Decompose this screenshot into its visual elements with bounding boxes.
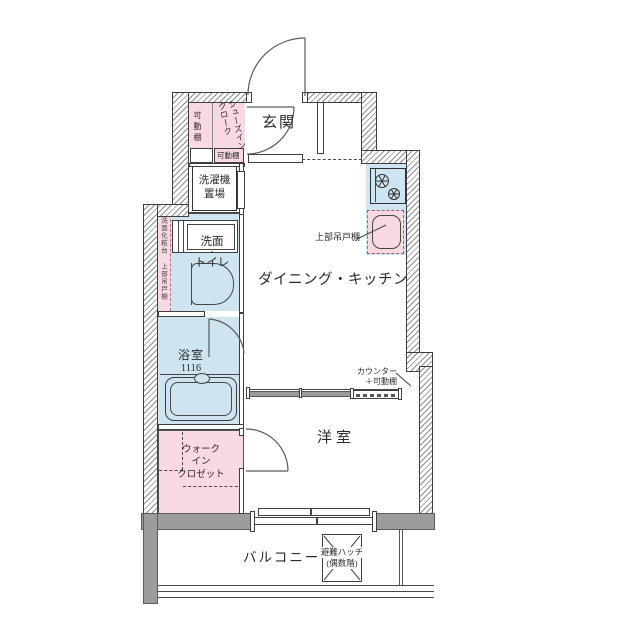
stove-burners	[376, 175, 400, 200]
vanity-strip-label: 洗面化粧台	[159, 217, 166, 255]
dining-kitchen-label: ダイニング・キッチン	[258, 273, 408, 288]
washer-label-line1: 洗濯機	[192, 174, 237, 188]
washroom-label-line1: 洗面	[190, 236, 234, 249]
kitchen-upper-cabinet-label: 上部吊戸棚	[315, 233, 360, 242]
front-door-arc	[248, 38, 305, 95]
bath-door-arc	[209, 319, 244, 353]
counter-leader-line	[396, 373, 411, 386]
counter-label-line2: ＋可動棚	[353, 377, 397, 387]
movable-shelf-box-label: 可動棚	[217, 152, 240, 160]
evacuation-hatch-label-line1: 避難ハッチ	[321, 547, 364, 558]
floorplan: 玄関 シューズイン クローク 可動棚 可動棚 洗濯機 置場 洗面化粧台 上部吊戸…	[0, 0, 640, 640]
bathroom-label: 浴室 1116	[160, 349, 222, 375]
counter-label-line1: カウンター	[353, 367, 397, 377]
counter-label: カウンター ＋可動棚	[353, 367, 397, 386]
wic-label-line2: イン	[160, 456, 242, 468]
evacuation-hatch-label-line2: (偶数階)	[326, 558, 357, 569]
movable-shelf-vertical-label: 可動棚	[193, 111, 201, 144]
washer-label-line2: 置場	[192, 188, 237, 202]
balcony-label: バルコニー	[243, 551, 320, 565]
wic-label-line1: ウォーク	[160, 444, 242, 456]
wic-label: ウォーク イン クロゼット	[160, 444, 242, 481]
washer-label: 洗濯機 置場	[192, 174, 237, 202]
upper-cabinet-leader-line	[357, 225, 386, 239]
western-room-label: 洋室	[317, 431, 355, 446]
plan-linework	[0, 0, 640, 640]
washroom-label-line2: トイレ	[190, 257, 234, 270]
toilet-upper-cabinet-strip-label: 上部吊戸棚	[159, 263, 166, 301]
bathroom-size-label: 1116	[160, 363, 222, 375]
washroom-label-dot: ・	[190, 249, 234, 258]
washroom-label: 洗面 ・ トイレ	[190, 236, 234, 270]
bathroom-label-text: 浴室	[160, 349, 222, 363]
evacuation-hatch-label: 避難ハッチ (偶数階)	[320, 547, 364, 569]
western-room-door-arc	[246, 429, 288, 471]
entrance-label: 玄関	[262, 116, 296, 131]
wic-label-line3: クロゼット	[160, 469, 242, 481]
